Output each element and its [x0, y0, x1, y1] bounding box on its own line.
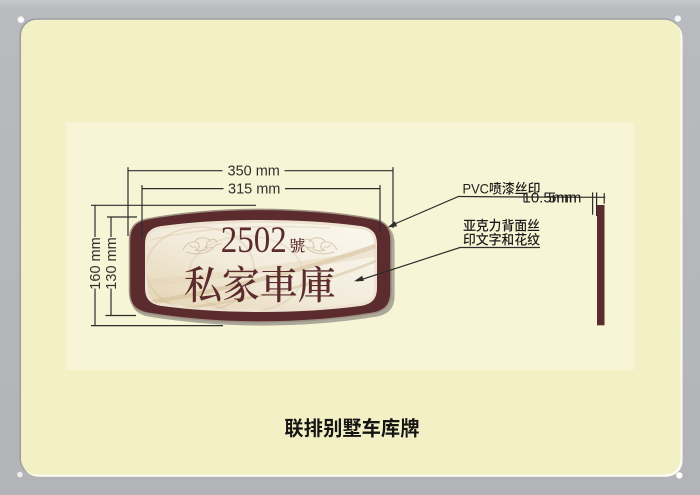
svg-text:印文字和花纹: 印文字和花纹: [463, 229, 540, 249]
svg-text:350 mm: 350 mm: [228, 164, 280, 180]
svg-text:號: 號: [289, 234, 305, 257]
svg-text:315 mm: 315 mm: [228, 182, 280, 198]
svg-text:5mm: 5mm: [548, 190, 581, 207]
svg-text:联排别墅车库牌: 联排别墅车库牌: [285, 412, 420, 442]
svg-text:私家車庫: 私家車庫: [184, 255, 336, 311]
svg-text:130 mm: 130 mm: [104, 237, 120, 289]
svg-text:160 mm: 160 mm: [88, 237, 104, 289]
